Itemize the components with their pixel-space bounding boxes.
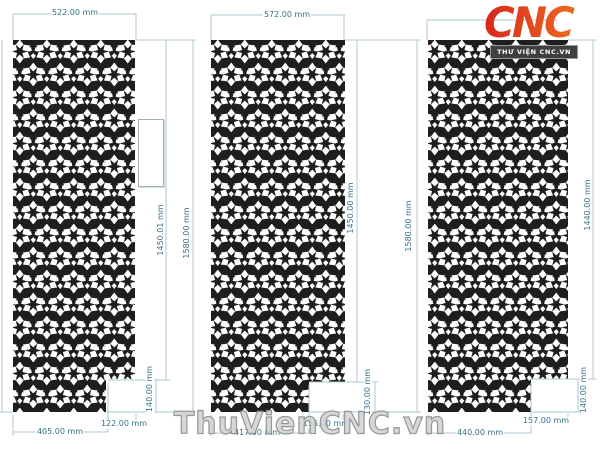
- dim-p2-side-height: 1450.00 mm: [347, 181, 355, 234]
- cnc-panel-catalog-page: 522.00 mm 572.00 mm 1450.01 mm 1580.00 m…: [0, 0, 600, 450]
- side-rectangle-artifact: [138, 119, 164, 187]
- dim-p1-top-width: 522.00 mm: [51, 9, 99, 17]
- panel-1-drawing: [13, 40, 135, 412]
- dim-p3-notch-height: 140.00 mm: [580, 366, 588, 414]
- dim-p1-side-height: 1450.01 mm: [157, 203, 165, 256]
- panel-2-drawing: [211, 40, 345, 412]
- watermark-text: ThuVienCNC.vn: [174, 407, 446, 442]
- dim-p2-top-width: 572.00 mm: [263, 11, 311, 19]
- dim-p2-left-height: 1580.00 mm: [183, 206, 191, 259]
- dim-p3-left-height: 1580.00 mm: [405, 199, 413, 252]
- cnc-logo: CNC THƯ VIỆN CNC.VN: [484, 2, 600, 44]
- panel-3-drawing: [428, 40, 568, 412]
- cnc-logo-banner: THƯ VIỆN CNC.VN: [490, 45, 578, 59]
- dim-p3-bottom-width: 440.00 mm: [456, 429, 504, 437]
- dim-p3-side-height: 1440.00 mm: [584, 178, 592, 231]
- cnc-logo-text: CNC: [484, 2, 600, 44]
- dim-p1-notch-width: 122.00 mm: [100, 420, 148, 428]
- dim-p1-bottom-width: 405.00 mm: [36, 428, 84, 436]
- dim-p1-notch-height: 140.00 mm: [146, 365, 154, 413]
- dim-p3-notch-width: 157.00 mm: [522, 417, 570, 425]
